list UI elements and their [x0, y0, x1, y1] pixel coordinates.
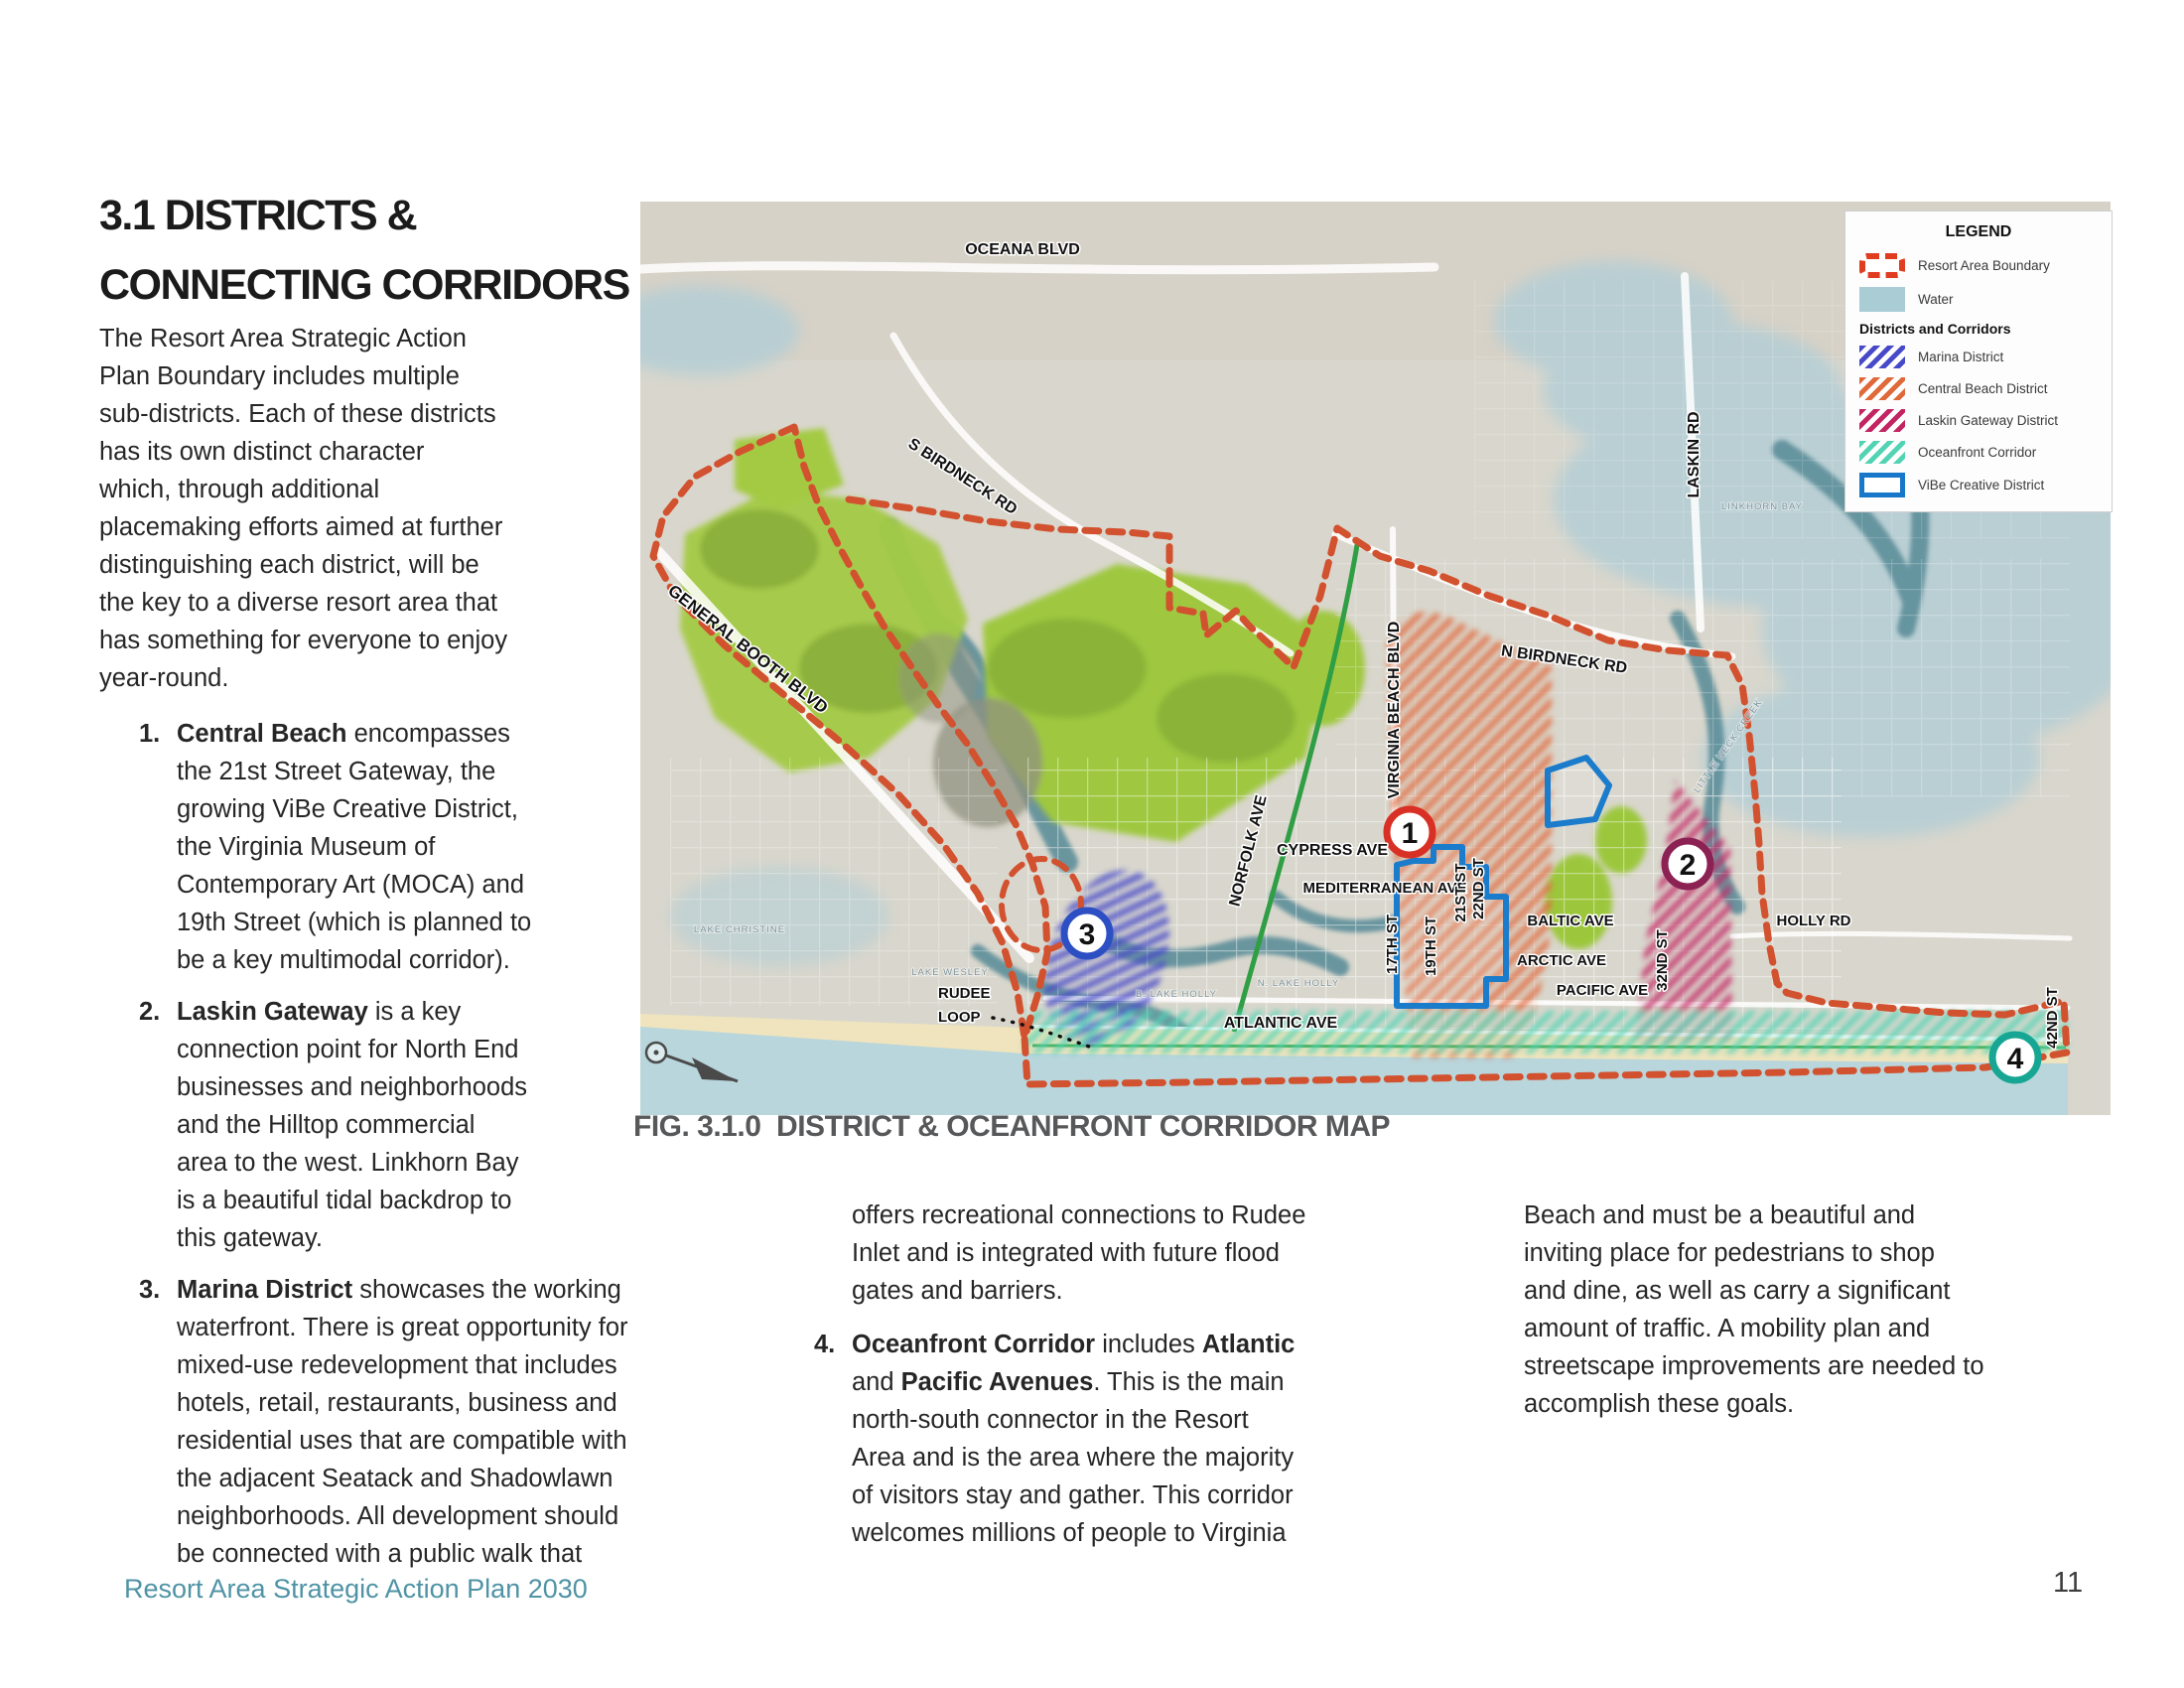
map-label-lake-christine: LAKE CHRISTINE: [694, 924, 785, 935]
map-label-17th-st: 17TH ST: [1384, 914, 1401, 974]
oceanfront-corridor-area: [1024, 1011, 2068, 1054]
list-number: 2.: [139, 993, 160, 1031]
map-label-32nd-st: 32ND ST: [1654, 929, 1671, 991]
legend-row-central-beach: Central Beach District: [1859, 377, 2098, 400]
district-name-bold: Oceanfront Corridor: [852, 1331, 1095, 1358]
marker-marina-district: 3: [1064, 911, 1110, 956]
list-item-central-beach: 1. Central Beach encompasses the 21st St…: [99, 715, 643, 979]
vibe-creative-district-swatch-icon: [1859, 473, 1905, 497]
legend-row-oceanfront: Oceanfront Corridor: [1859, 441, 2098, 464]
legend-label: Water: [1918, 292, 1954, 307]
map-label-pacific-ave: PACIFIC AVE: [1557, 982, 1648, 999]
legend-subheading: Districts and Corridors: [1859, 321, 2098, 337]
marina-continuation-paragraph: offers recreational connections to Rudee…: [814, 1196, 1449, 1310]
map-label-baltic-ave: BALTIC AVE: [1527, 913, 1613, 929]
marker-number: 3: [1079, 918, 1096, 951]
marker-laskin-gateway: 2: [1665, 841, 1710, 887]
oceanfront-corridor-swatch-icon: [1859, 441, 1905, 464]
map-label-mediterranean-ave: MEDITERRANEAN AVE: [1302, 880, 1466, 897]
legend-row-boundary: Resort Area Boundary: [1859, 253, 2098, 278]
marker-number: 4: [2007, 1043, 2024, 1075]
district-name-bold: Central Beach: [177, 720, 346, 748]
marker-central-beach: 1: [1387, 809, 1433, 855]
map-label-19th-st: 19TH ST: [1423, 916, 1439, 976]
list-number: 4.: [814, 1326, 835, 1363]
left-text-column: The Resort Area Strategic Action Plan Bo…: [99, 320, 695, 1587]
district-name-bold: Marina District: [177, 1276, 352, 1304]
list-item-text: and: [852, 1368, 901, 1396]
footer-document-title: Resort Area Strategic Action Plan 2030: [124, 1574, 588, 1605]
map-label-42nd-st: 42ND ST: [2044, 987, 2061, 1049]
legend-label: Marina District: [1918, 350, 2003, 364]
intro-paragraph: The Resort Area Strategic Action Plan Bo…: [99, 320, 615, 697]
list-item-laskin-gateway: 2. Laskin Gateway is a key connection po…: [99, 993, 643, 1257]
water-swatch-icon: [1859, 287, 1905, 312]
map-label-loop: LOOP: [938, 1009, 981, 1026]
list-item-text: is a key connection point for North End …: [177, 998, 527, 1252]
list-number: 1.: [139, 715, 160, 753]
marker-number: 1: [1402, 817, 1419, 850]
map-label-holly-rd: HOLLY RD: [1776, 913, 1850, 929]
laskin-gateway-district-swatch-icon: [1859, 409, 1905, 432]
middle-text-column: offers recreational connections to Rudee…: [814, 1196, 1449, 1566]
legend-row-water: Water: [1859, 287, 2098, 312]
list-item-oceanfront-corridor: 4. Oceanfront Corridor includes Atlantic…: [814, 1326, 1487, 1552]
legend-title: LEGEND: [1859, 223, 2098, 241]
legend-label: Laskin Gateway District: [1918, 413, 2058, 428]
map-label-cypress-ave: CYPRESS AVE: [1277, 842, 1388, 859]
oceanfront-continuation-paragraph: Beach and must be a beautiful and inviti…: [1524, 1196, 2139, 1423]
district-oceanfront-corridor-map: 1 2 3 4 OCEANA BLVD S BIRDNECK RD: [640, 202, 2111, 1115]
list-item-marina-district: 3. Marina District showcases the working…: [99, 1271, 772, 1573]
map-label-laskin-rd: LASKIN RD: [1686, 411, 1703, 497]
map-label-b-lake-holly: B. LAKE HOLLY: [1136, 989, 1217, 1000]
map-label-lake-wesley: LAKE WESLEY: [911, 967, 989, 978]
map-label-oceana-blvd: OCEANA BLVD: [965, 241, 1080, 258]
map-label-n-lake-holly: N. LAKE HOLLY: [1258, 978, 1340, 989]
map-label-virginia-beach-blvd: VIRGINIA BEACH BLVD: [1386, 622, 1403, 799]
legend-label: Oceanfront Corridor: [1918, 445, 2036, 460]
page-number: 11: [2053, 1567, 2083, 1600]
document-page: 3.1 DISTRICTS & CONNECTING CORRIDORS The…: [0, 0, 2184, 1688]
map-label-21st-st: 21ST ST: [1452, 863, 1469, 921]
district-name-bold: Laskin Gateway: [177, 998, 368, 1026]
list-item-text: includes: [1095, 1331, 1202, 1358]
legend-row-vibe: ViBe Creative District: [1859, 473, 2098, 497]
map-legend: LEGEND Resort Area Boundary Water Distri…: [1844, 211, 2113, 512]
legend-row-laskin-gateway: Laskin Gateway District: [1859, 409, 2098, 432]
map-label-atlantic-ave: ATLANTIC AVE: [1224, 1015, 1338, 1032]
legend-label: Resort Area Boundary: [1918, 258, 2050, 273]
marina-district-swatch-icon: [1859, 346, 1905, 368]
street-name-bold: Atlantic: [1202, 1331, 1296, 1358]
map-label-arctic-ave: ARCTIC AVE: [1517, 952, 1606, 969]
legend-row-marina: Marina District: [1859, 346, 2098, 368]
legend-label: ViBe Creative District: [1918, 478, 2044, 492]
marker-number: 2: [1680, 849, 1697, 882]
figure-caption: FIG. 3.1.0 DISTRICT & OCEANFRONT CORRIDO…: [633, 1110, 1390, 1144]
central-beach-district-swatch-icon: [1859, 377, 1905, 400]
map-label-rudee: RUDEE: [938, 985, 991, 1002]
map-label-22nd-st: 22ND ST: [1470, 858, 1487, 919]
map-label-linkhorn-bay: LINKHORN BAY: [1721, 501, 1803, 512]
right-text-column: Beach and must be a beautiful and inviti…: [1524, 1196, 2139, 1423]
marker-oceanfront-corridor: 4: [1992, 1035, 2038, 1080]
section-title: 3.1 DISTRICTS & CONNECTING CORRIDORS: [99, 181, 629, 320]
list-number: 3.: [139, 1271, 160, 1309]
list-item-text: showcases the working waterfront. There …: [177, 1276, 628, 1568]
list-item-text: encompasses the 21st Street Gateway, the…: [177, 720, 531, 974]
resort-boundary-swatch-icon: [1859, 253, 1905, 278]
legend-label: Central Beach District: [1918, 381, 2048, 396]
street-name-bold: Pacific Avenues: [901, 1368, 1094, 1396]
